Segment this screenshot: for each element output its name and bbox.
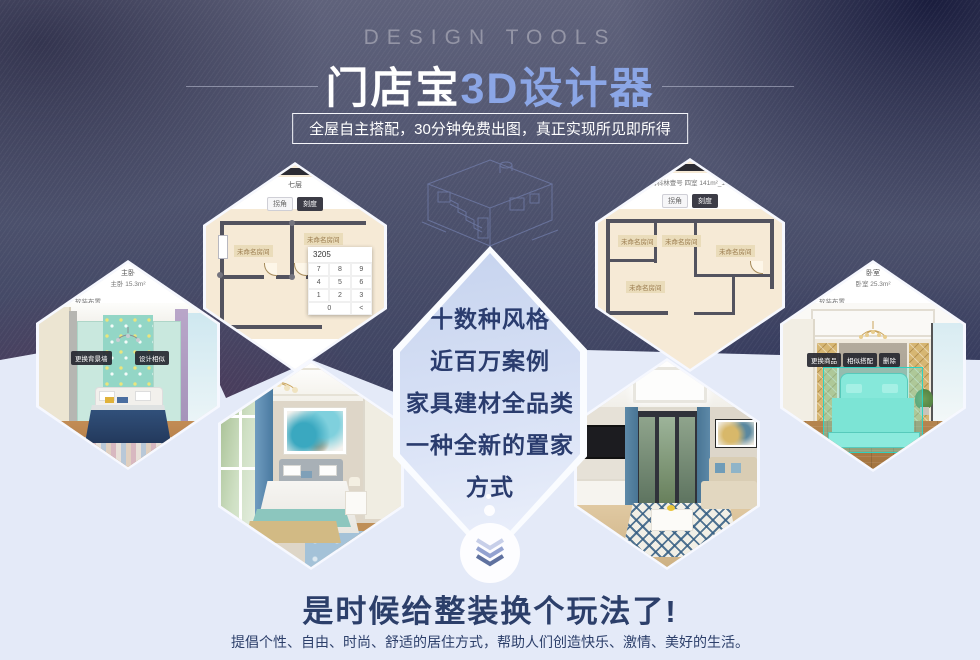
balcony-doors — [635, 411, 699, 507]
feature-line: 近百万案例 — [400, 340, 580, 382]
bed-pillow — [846, 384, 862, 393]
window — [931, 323, 963, 427]
scroll-down-button[interactable] — [460, 523, 520, 583]
corner-mode-toggle[interactable]: 拐角 — [662, 194, 688, 208]
door-arc — [264, 263, 277, 276]
keypad-key[interactable]: 6 — [351, 276, 372, 289]
wall — [290, 221, 294, 279]
house-wireframe-icon — [420, 156, 560, 250]
room-label: 未命名房间 — [716, 245, 755, 257]
page-title-white: 门店宝 — [326, 65, 461, 113]
wall-joint — [289, 274, 295, 280]
dimension-keypad: 3205 7 8 9 4 5 6 1 2 3 0 < — [308, 247, 372, 315]
subtitle-banner: 全屋自主搭配，30分钟免费出图，真正实现所见即所得 — [292, 113, 688, 144]
sofa-seat — [701, 481, 757, 509]
ceiling-light — [633, 367, 707, 403]
wall — [606, 259, 657, 262]
window-symbol — [218, 235, 228, 259]
chandelier-icon — [857, 321, 889, 347]
wall-joint — [289, 220, 295, 226]
similar-item-button[interactable]: 相似搭配 — [843, 353, 877, 367]
wall — [606, 219, 774, 223]
accent-pillow — [301, 471, 312, 478]
bed-blanket — [85, 405, 171, 443]
keypad-key[interactable]: 9 — [351, 263, 372, 276]
door-arc — [294, 263, 307, 276]
wall-painting — [715, 419, 757, 448]
scroll-dot-small — [486, 494, 491, 499]
wall — [606, 311, 668, 315]
pillow — [135, 391, 151, 401]
accent-pillow — [105, 397, 114, 403]
curtain — [625, 407, 638, 511]
hex-bedroom-painting[interactable] — [218, 360, 404, 570]
keypad-key[interactable]: 7 — [308, 263, 329, 276]
replace-item-button[interactable]: 更换商品 — [807, 353, 841, 367]
accent-pillow — [117, 397, 128, 403]
sofa-pillow — [715, 463, 725, 473]
wall — [694, 219, 697, 277]
wall — [732, 274, 735, 315]
room-label: 未命名房间 — [618, 235, 657, 247]
selected-bed[interactable] — [823, 367, 923, 453]
keypad-key[interactable]: 5 — [329, 276, 350, 289]
selection-context-menu: 更换商品 相似搭配 删除 — [807, 353, 900, 367]
pillow — [283, 465, 301, 476]
footer-subline: 提倡个性、自由、时尚、舒适的居住方式，帮助人们创造快乐、激情、美好的生活。 — [0, 632, 980, 652]
wall — [606, 219, 610, 315]
feature-line: 家具建材全品类 — [400, 382, 580, 424]
similar-design-button[interactable]: 设计相似 — [135, 351, 169, 365]
painting-canvas — [718, 422, 754, 445]
delete-item-button[interactable]: 删除 — [879, 353, 900, 367]
keypad-key[interactable]: 1 — [308, 289, 329, 302]
glass-pane — [659, 417, 675, 503]
wall-joint — [217, 272, 223, 278]
table-lamp — [349, 477, 360, 486]
room-label: 未命名房间 — [234, 245, 273, 257]
chandelier-icon — [115, 327, 141, 349]
room-label: 未命名房间 — [626, 281, 665, 293]
fruit-bowl — [667, 505, 675, 511]
scroll-dot-medium — [484, 505, 495, 516]
room-label: 未命名房间 — [304, 233, 343, 245]
bed-pillow — [882, 384, 898, 393]
chevron-down-icon — [474, 538, 506, 568]
keypad-key[interactable]: 2 — [329, 289, 350, 302]
door-arc — [750, 261, 763, 274]
keypad-key[interactable]: 8 — [329, 263, 350, 276]
living-room-scene — [577, 361, 757, 567]
bedroom-painting-scene — [221, 363, 401, 567]
pillow — [319, 465, 337, 476]
glass-pane — [639, 417, 655, 503]
coffee-table — [651, 509, 693, 531]
keypad-grid: 7 8 9 4 5 6 1 2 3 0 < — [308, 263, 372, 315]
keypad-key[interactable]: 4 — [308, 276, 329, 289]
abstract-painting — [283, 407, 347, 455]
wall — [770, 219, 774, 289]
glass-pane — [679, 417, 695, 503]
room-label: 未命名房间 — [662, 235, 701, 247]
keypad-backspace-key[interactable]: < — [351, 302, 372, 315]
painting-canvas — [287, 411, 343, 451]
change-wall-button[interactable]: 更换背景墙 — [71, 351, 112, 365]
bed-skirt — [828, 432, 920, 448]
scale-mode-toggle[interactable]: 刻度 — [297, 197, 323, 211]
kicker-text: DESIGN TOOLS — [0, 26, 980, 50]
wall — [220, 275, 264, 279]
title-divider-left — [186, 86, 318, 87]
wall — [694, 312, 735, 315]
wardrobe — [783, 319, 815, 449]
scale-mode-toggle[interactable]: 刻度 — [692, 194, 718, 208]
keypad-key[interactable]: 3 — [351, 289, 372, 302]
wall — [220, 325, 322, 329]
page-title-blue: 3D设计器 — [461, 65, 655, 113]
hex-living-room[interactable] — [574, 358, 760, 570]
wardrobe — [39, 307, 71, 449]
sofa-pillow — [731, 463, 741, 473]
keypad-key-zero[interactable]: 0 — [308, 302, 351, 315]
dimension-value: 3205 — [308, 247, 372, 263]
corner-mode-toggle[interactable]: 拐角 — [267, 197, 293, 211]
page-title: 门店宝3D设计器 — [0, 54, 980, 116]
title-divider-right — [662, 86, 794, 87]
gold-blanket — [245, 521, 341, 543]
nightstand — [345, 491, 367, 515]
footer-headline: 是时候给整装换个玩法了! — [0, 586, 980, 631]
bed-body — [832, 398, 914, 436]
